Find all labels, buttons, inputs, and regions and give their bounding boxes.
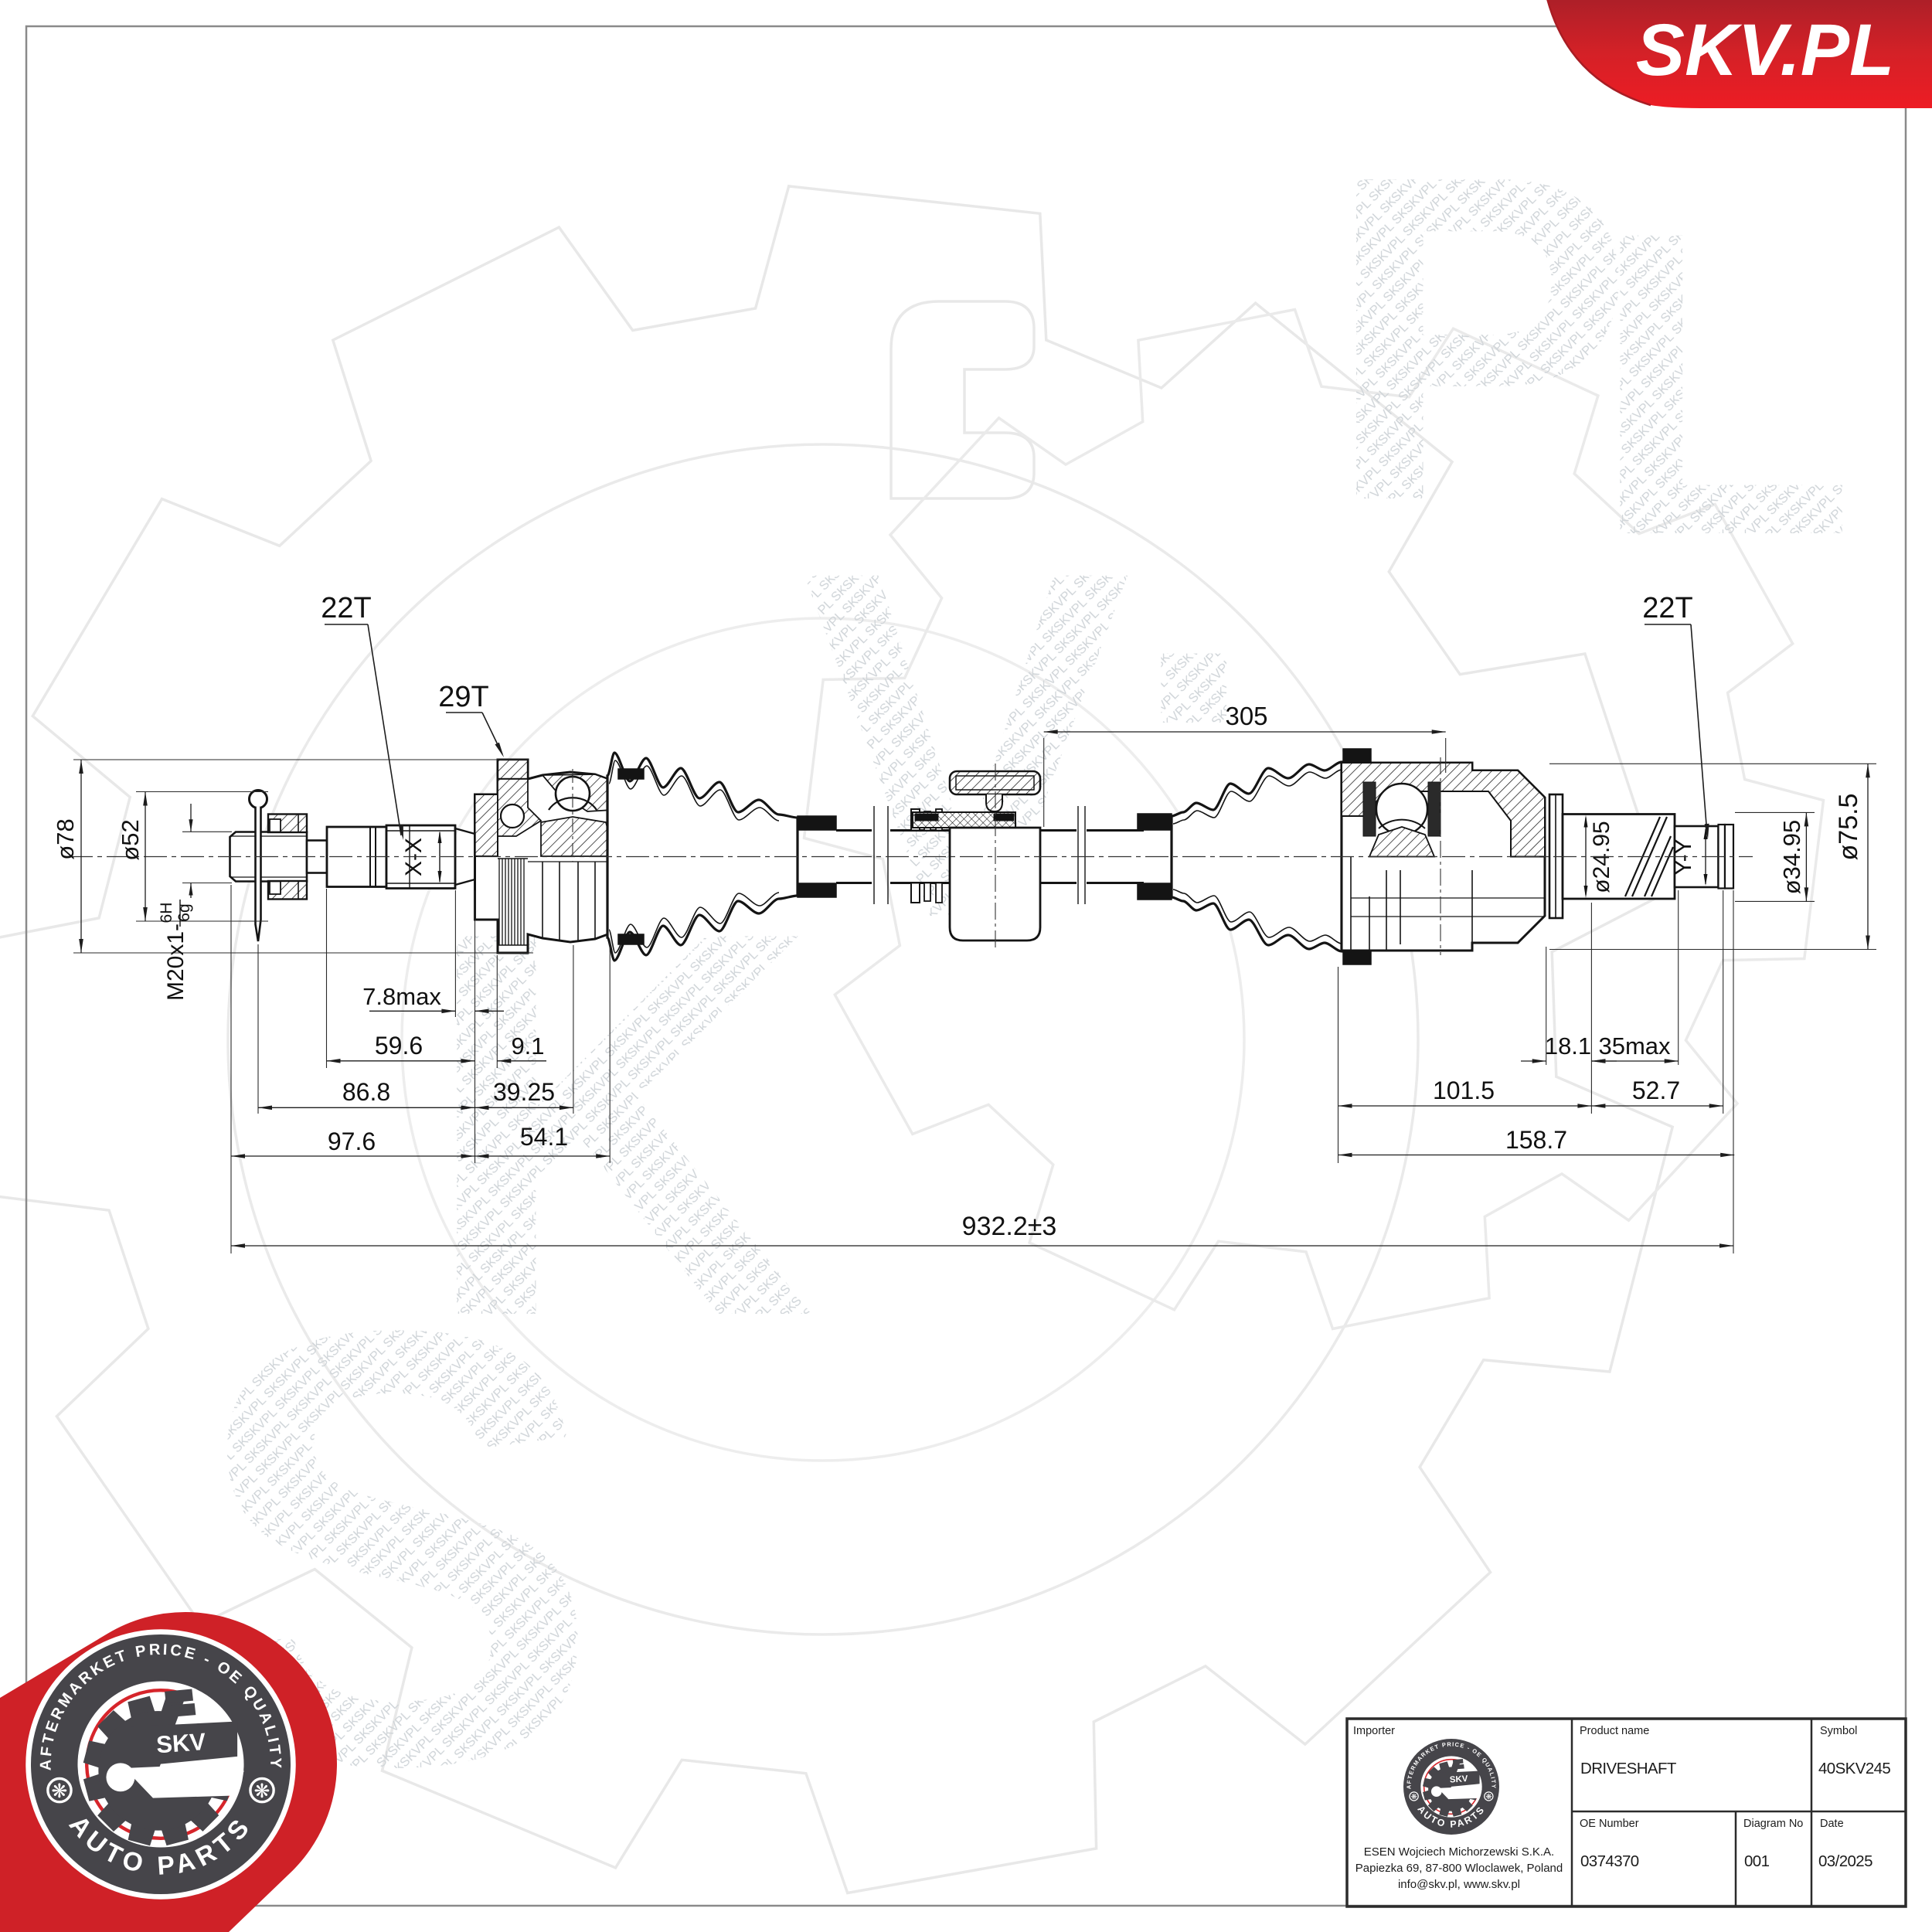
svg-text:ø75.5: ø75.5 xyxy=(1834,794,1863,861)
svg-text:40SKV245: 40SKV245 xyxy=(1818,1760,1890,1777)
svg-text:97.6: 97.6 xyxy=(328,1128,376,1155)
svg-text:ESEN Wojciech Michorzewski S.K: ESEN Wojciech Michorzewski S.K.A. xyxy=(1364,1845,1554,1859)
svg-text:L: L xyxy=(1591,141,1855,625)
svg-text:29T: 29T xyxy=(438,681,488,713)
svg-text:9.1: 9.1 xyxy=(511,1032,544,1060)
svg-text:Diagram No: Diagram No xyxy=(1743,1818,1803,1830)
svg-text:6g: 6g xyxy=(175,903,193,921)
svg-text:52.7: 52.7 xyxy=(1632,1077,1680,1104)
svg-text:SKV.PL: SKV.PL xyxy=(1636,9,1894,91)
svg-text:001: 001 xyxy=(1744,1852,1770,1870)
svg-text:Symbol: Symbol xyxy=(1820,1725,1857,1737)
svg-text:Product name: Product name xyxy=(1580,1725,1649,1737)
svg-text:Papiezka 69, 87-800 Wloclawek,: Papiezka 69, 87-800 Wloclawek, Poland xyxy=(1355,1862,1563,1875)
svg-text:OE Number: OE Number xyxy=(1580,1818,1639,1830)
svg-text:35max: 35max xyxy=(1598,1032,1671,1060)
svg-text:ø52: ø52 xyxy=(117,819,144,860)
svg-text:59.6: 59.6 xyxy=(375,1032,423,1060)
svg-text:ø34.95: ø34.95 xyxy=(1778,820,1805,895)
svg-text:101.5: 101.5 xyxy=(1433,1077,1495,1104)
svg-text:03/2025: 03/2025 xyxy=(1818,1852,1872,1870)
svg-text:54.1: 54.1 xyxy=(520,1123,568,1151)
svg-text:39.25: 39.25 xyxy=(493,1078,555,1106)
svg-text:P: P xyxy=(1325,80,1634,597)
svg-text:M20x1-: M20x1- xyxy=(163,923,189,1001)
svg-text:DRIVESHAFT: DRIVESHAFT xyxy=(1580,1760,1677,1777)
svg-text:22T: 22T xyxy=(1642,592,1692,624)
svg-text:86.8: 86.8 xyxy=(342,1078,390,1106)
svg-text:22T: 22T xyxy=(321,592,371,624)
svg-text:info@skv.pl, www.skv.pl: info@skv.pl, www.skv.pl xyxy=(1398,1878,1520,1891)
svg-text:932.2±3: 932.2±3 xyxy=(962,1212,1057,1241)
svg-text:Importer: Importer xyxy=(1353,1725,1395,1737)
svg-text:.: . xyxy=(1130,304,1259,821)
svg-text:7.8max: 7.8max xyxy=(362,983,441,1010)
svg-text:0374370: 0374370 xyxy=(1580,1852,1639,1870)
svg-text:305: 305 xyxy=(1225,702,1267,730)
svg-text:ø78: ø78 xyxy=(52,818,79,859)
svg-text:18.1: 18.1 xyxy=(1545,1032,1591,1060)
svg-text:158.7: 158.7 xyxy=(1505,1126,1567,1154)
svg-text:6H: 6H xyxy=(158,903,175,923)
svg-text:Date: Date xyxy=(1820,1818,1844,1830)
